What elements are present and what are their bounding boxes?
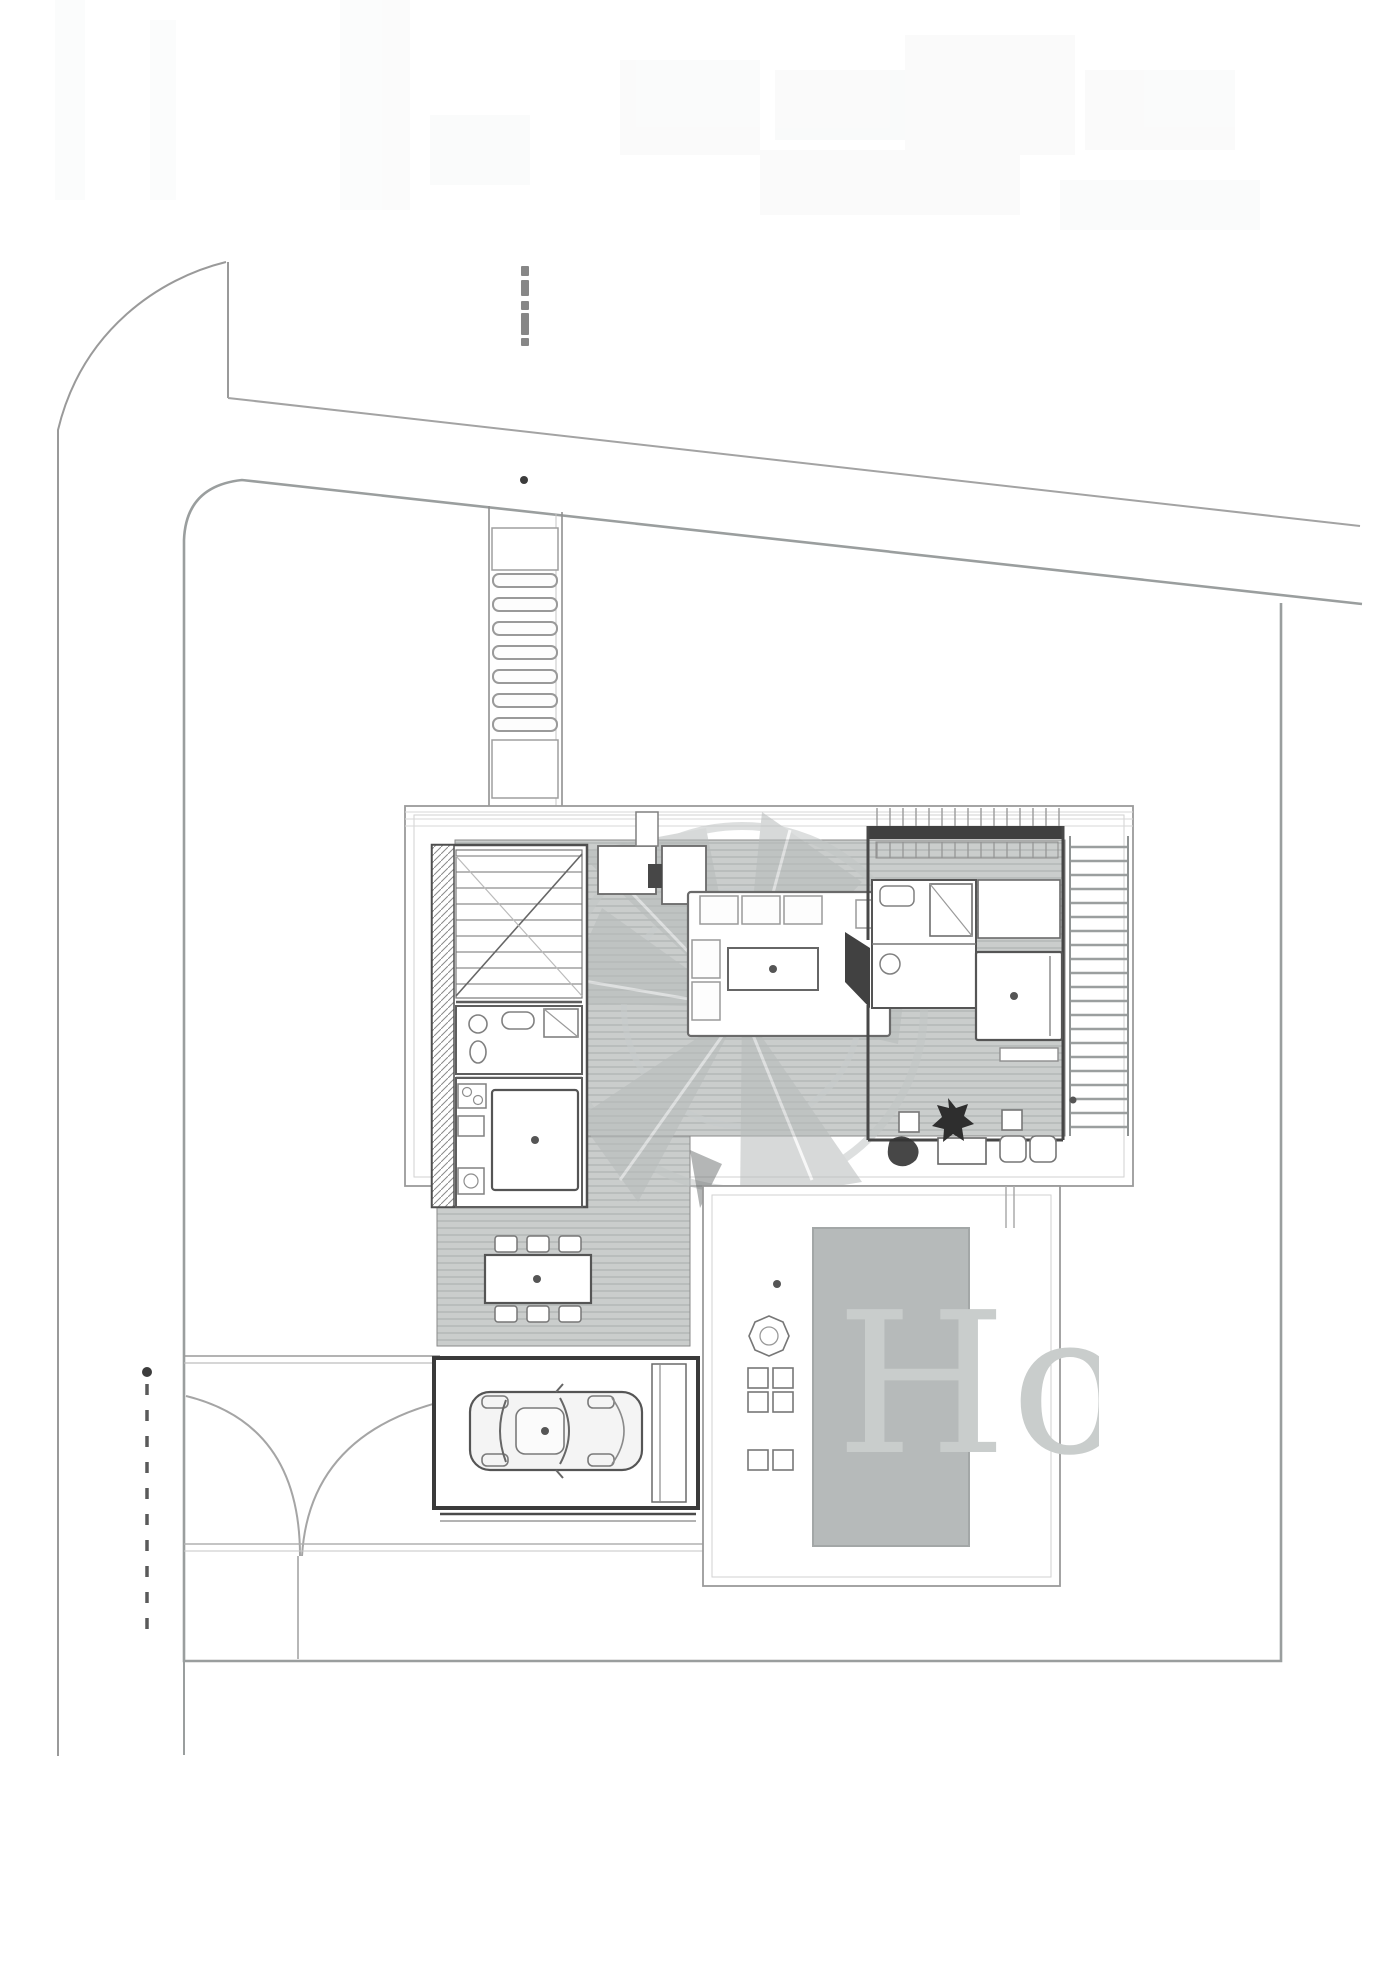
poolside-table-icon: [749, 1316, 789, 1356]
walkway-landing-bottom: [492, 740, 558, 798]
walkway-steps: [493, 574, 557, 731]
kitchen: [456, 1078, 582, 1207]
car-roof: [516, 1408, 564, 1454]
setback-dashed-line: [142, 1367, 152, 1630]
survey-dot-marker: [142, 1367, 152, 1377]
site-plan-drawing: Ho: [0, 0, 1400, 1980]
pool-patio: Ho: [703, 1186, 1133, 1586]
entry-column: [636, 812, 658, 846]
ensuite-bathroom: [872, 880, 976, 1008]
street-kerb: [58, 262, 228, 1756]
walkway-landing-top: [492, 528, 558, 570]
armchair-icon: [1000, 1136, 1026, 1162]
room-dot-marker: [769, 965, 777, 973]
car-top-view: [470, 1384, 642, 1478]
fireplace-icon: [648, 864, 662, 888]
room-dot-marker: [541, 1427, 549, 1435]
dining-terrace: [485, 1236, 591, 1322]
room-dot-marker: [531, 1136, 539, 1144]
plot-fence-line: [228, 398, 1360, 526]
louver-deck-band: [1070, 836, 1128, 1136]
site-plan-sheet: Ho: [0, 0, 1400, 1980]
bathroom: [456, 1006, 582, 1074]
entry-walkway: [489, 476, 562, 846]
garage-storage-strip: [652, 1364, 686, 1502]
bed-bench: [1000, 1048, 1058, 1061]
entry-dot-marker: [520, 476, 528, 484]
service-wing: [432, 845, 587, 1207]
room-dot-marker: [533, 1275, 541, 1283]
room-dot-marker: [1010, 992, 1018, 1000]
dressing-closet: [978, 880, 1060, 938]
room-dot-marker: [1070, 1097, 1077, 1104]
insulated-wall-hatch: [432, 845, 454, 1207]
staircase: [456, 850, 582, 998]
garage: [434, 1358, 698, 1521]
armchair-icon: [1030, 1136, 1056, 1162]
watermark-text: Ho: [836, 1271, 1133, 1499]
pergola-ticks: [872, 808, 1062, 826]
street-label-illegible: [521, 266, 529, 346]
faded-scan-artifacts: [55, 0, 1260, 230]
wardrobe-band: [876, 842, 1058, 858]
outdoor-table: [938, 1138, 986, 1164]
bed: [976, 952, 1062, 1040]
room-dot-marker: [773, 1280, 781, 1288]
gate-swing-arc-left: [186, 1396, 300, 1556]
bedroom-top-wall: [868, 826, 1064, 839]
